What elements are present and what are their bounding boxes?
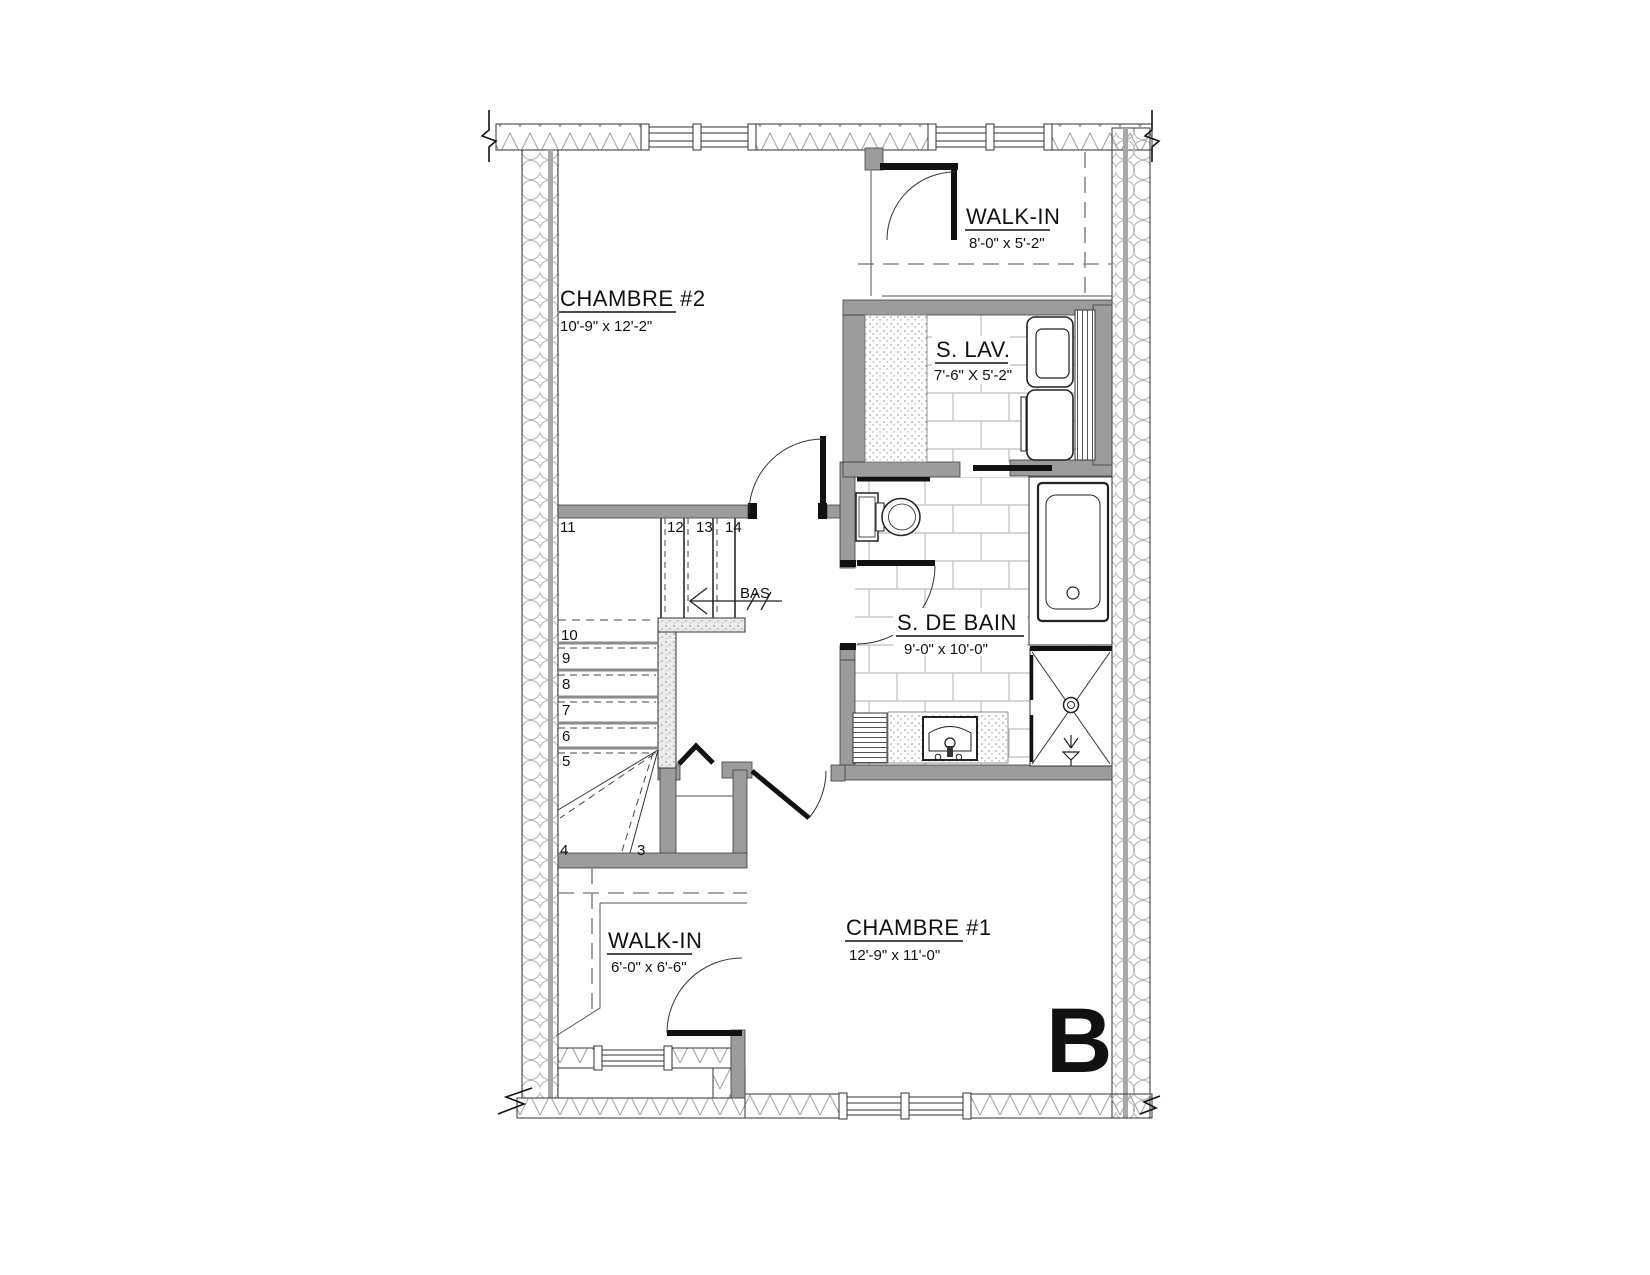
- dryer: [1021, 390, 1073, 460]
- laundry-side-counter: [1075, 310, 1095, 460]
- vanity: [853, 712, 1008, 763]
- shower: [1030, 646, 1112, 766]
- exterior-wall-right: [1112, 128, 1150, 1118]
- unit-letter: B: [1046, 990, 1112, 1092]
- shower-drain-icon: [1064, 698, 1079, 713]
- svg-text:14: 14: [725, 519, 742, 536]
- room-label: S. LAV.: [936, 337, 1010, 362]
- svg-text:5: 5: [562, 753, 570, 770]
- stair-step-number: 11 12 13 14 10 9 8 7 6 5 4 3: [560, 519, 742, 859]
- svg-text:9: 9: [562, 650, 570, 667]
- floor-plan-drawing: 11 12 13 14 10 9 8 7 6 5 4 3 BAS: [0, 0, 1650, 1275]
- room-label: WALK-IN: [966, 204, 1060, 229]
- svg-text:12: 12: [667, 519, 684, 536]
- svg-text:8: 8: [562, 676, 570, 693]
- svg-text:6: 6: [562, 728, 570, 745]
- room-dims: 7'-6" X 5'-2": [934, 367, 1012, 384]
- room-dims: 10'-9" x 12'-2": [560, 318, 652, 335]
- room-dims: 12'-9" x 11'-0": [849, 947, 940, 964]
- stair-newel-wall: [658, 618, 745, 768]
- window: [839, 1093, 971, 1119]
- exterior-wall-left: [522, 150, 558, 1098]
- room-label: CHAMBRE #1: [846, 915, 992, 940]
- window: [928, 124, 1052, 150]
- svg-text:3: 3: [637, 842, 645, 859]
- room-dims: 6'-0" x 6'-6": [611, 959, 687, 976]
- svg-text:11: 11: [560, 519, 576, 536]
- exterior-wall-top: [496, 124, 1152, 150]
- svg-text:10: 10: [561, 627, 578, 644]
- laundry-counter: [865, 315, 927, 462]
- window: [594, 1046, 672, 1070]
- bathtub: [1029, 477, 1112, 645]
- svg-text:13: 13: [696, 519, 713, 536]
- floor-plan-page: 11 12 13 14 10 9 8 7 6 5 4 3 BAS: [0, 0, 1650, 1275]
- svg-text:7: 7: [562, 702, 570, 719]
- svg-text:4: 4: [560, 842, 568, 859]
- room-dims: 8'-0" x 5'-2": [969, 235, 1045, 252]
- plumbing-wall: [1093, 305, 1112, 465]
- window: [641, 124, 756, 150]
- room-label: CHAMBRE #2: [560, 286, 706, 311]
- room-label: WALK-IN: [608, 928, 702, 953]
- sink: [923, 717, 977, 760]
- stair-direction-label: BAS: [740, 585, 770, 602]
- washer: [1027, 317, 1073, 387]
- room-label: S. DE BAIN: [897, 610, 1017, 635]
- room-dims: 9'-0" x 10'-0": [904, 641, 988, 658]
- vanity-drawers: [853, 713, 887, 763]
